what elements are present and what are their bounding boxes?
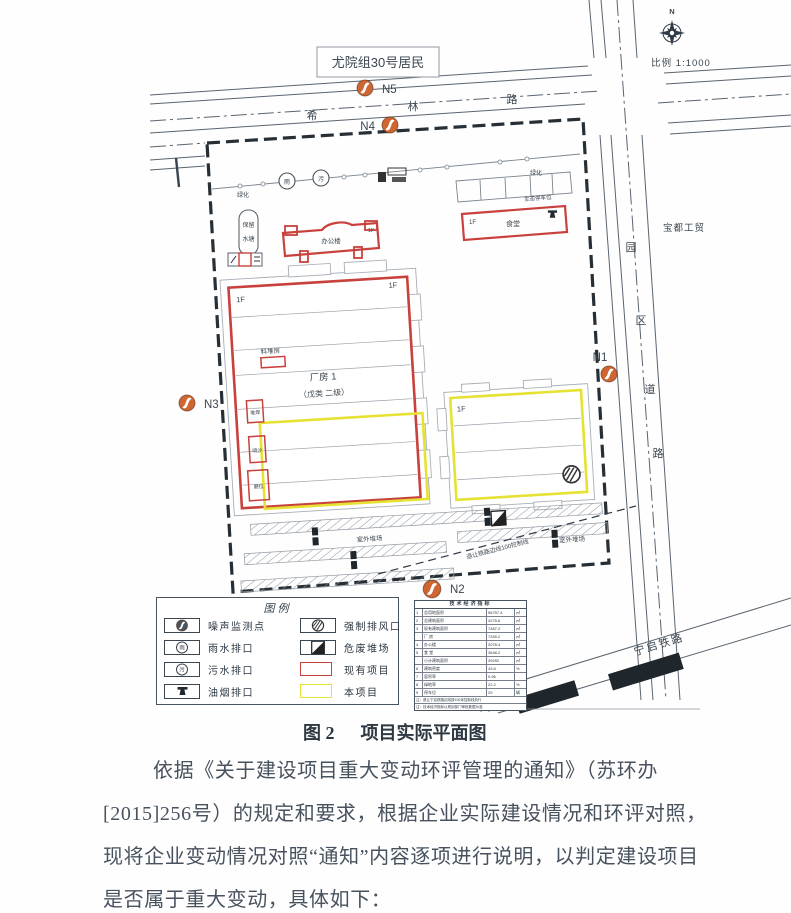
row-value: 56757.4 <box>487 609 515 616</box>
monitor-point-icon-n5 <box>357 80 373 96</box>
row-name: 总用地面积 <box>423 609 487 616</box>
indicator-table-row: 3 现有建筑面积 7487.2 ㎡ <box>415 625 526 633</box>
pond-line2: 水塘 <box>242 235 254 243</box>
svg-text:雨: 雨 <box>179 644 185 651</box>
monitor-label-n4: N4 <box>360 121 375 133</box>
road-xilin-char2: 林 <box>408 99 419 113</box>
row-value: 7487.2 <box>487 625 515 632</box>
row-value: 29 <box>487 689 515 696</box>
south-yards: 室外堆场 室外堆场 <box>237 501 610 592</box>
room-label-2: 喷沙 <box>252 447 262 455</box>
body-line-2: [2015]256号）的规定和要求，根据企业实际建设情况和环评对照， <box>103 799 703 842</box>
row-name: 厂 房 <box>423 633 487 640</box>
row-name: 小计建筑面积 <box>423 657 487 664</box>
monitor-label-n2: N2 <box>450 584 465 596</box>
svg-text:污: 污 <box>179 665 185 673</box>
row-name: 停车位 <box>423 689 487 696</box>
row-value: 4275.6 <box>487 617 515 624</box>
xilin-road <box>150 66 600 187</box>
legend-item-label: 现有项目 <box>344 662 399 677</box>
row-index: 8 <box>415 681 423 688</box>
legend-item-label: 噪声监测点 <box>208 618 300 633</box>
legend-item-label: 强制排风口 <box>344 618 399 633</box>
indicator-table-row: 8 绿地率 22.2 % <box>415 681 526 689</box>
xilin-road-east <box>658 65 791 134</box>
indicator-table-row: 4 办公楼 2078.4 ㎡ <box>415 641 526 649</box>
legend-item-label: 污水排口 <box>208 662 300 677</box>
indicator-table-rows: 1 总用地面积 56757.4 ㎡ 2 总建筑面积 4275.6 ㎡ 3 现有建… <box>415 609 526 697</box>
park-road <box>589 0 680 700</box>
row-unit: ㎡ <box>515 617 526 624</box>
monitor-label-n5: N5 <box>382 84 397 96</box>
canteen-label: 食堂 <box>506 219 520 228</box>
road-park-char4: 路 <box>653 447 664 460</box>
row-name: 食 堂 <box>423 649 487 656</box>
rain-outlet-legend-icon: 雨 <box>164 640 200 655</box>
eco-parking-strip <box>456 172 572 202</box>
road-park-char1: 园 <box>626 241 637 254</box>
row-name: 容积率 <box>423 673 487 680</box>
legend-item-label: 油烟排口 <box>208 684 300 699</box>
indicator-table-row: 厂 房 7345.2 ㎡ <box>415 633 526 641</box>
north-label: N <box>669 7 674 16</box>
rain-outlet-char: 雨 <box>284 179 290 186</box>
legend-grid: 噪声监测点 强制排风口 雨 雨水排口 危废堆场 污 污水排口 现有项目 油烟排口… <box>164 614 399 702</box>
indicator-table-title: 技术经济指标 <box>415 601 526 609</box>
company-label: 宝都工贸 <box>663 222 705 234</box>
row-unit: ㎡ <box>515 649 526 656</box>
row-unit: ㎡ <box>515 657 526 664</box>
compass-rose <box>659 20 685 46</box>
row-name: 绿地率 <box>423 681 487 688</box>
legend-item-label: 雨水排口 <box>208 640 300 655</box>
body-line-1: 依据《关于建设项目重大变动环评管理的通知》（苏环办 <box>103 756 703 799</box>
row-index: 3 <box>415 625 423 632</box>
factory2-building: 1F <box>435 377 595 516</box>
resident-label: 尤院组30号居民 <box>332 55 424 70</box>
indicator-table-row: 2 总建筑面积 4275.6 ㎡ <box>415 617 526 625</box>
row-index <box>415 657 423 664</box>
road-xilin-char3: 路 <box>507 93 518 106</box>
factory2-floor: 1F <box>457 404 467 414</box>
row-name: 建筑密度 <box>423 665 487 672</box>
monitor-point-icon-n4 <box>382 117 398 133</box>
row-index: 7 <box>415 673 423 680</box>
sewage-outlet-char: 污 <box>318 175 324 183</box>
row-value: 7345.2 <box>487 633 515 640</box>
indicator-note-1: 注：退让宁启铁路边线按100米控制线执行 <box>415 697 526 704</box>
scale-label: 比例 1:1000 <box>651 57 711 69</box>
row-unit: ㎡ <box>515 609 526 616</box>
row-unit: 辆 <box>515 689 526 696</box>
legend-item-label: 危废堆场 <box>344 640 399 655</box>
indicator-table-row: 7 容积率 0.96 <box>415 673 526 681</box>
legend-item-label: 本项目 <box>344 684 399 699</box>
row-value: 2078.4 <box>487 641 515 648</box>
row-index: 5 <box>415 649 423 656</box>
figure-number: 图 2 <box>303 719 335 745</box>
row-index: 4 <box>415 641 423 648</box>
forced-vent-icon <box>563 465 581 483</box>
room-label-3: 磨位 <box>253 483 263 491</box>
monitor-label-n3: N3 <box>204 399 219 411</box>
monitor-point-icon-n1 <box>601 366 617 382</box>
indicator-table-row: 5 食 堂 3648.2 ㎡ <box>415 649 526 657</box>
indicator-table-row: 9 停车位 29 辆 <box>415 689 526 697</box>
row-unit: % <box>515 681 526 688</box>
this-project-legend-swatch <box>300 684 332 698</box>
row-index <box>415 633 423 640</box>
row-name: 办公楼 <box>423 641 487 648</box>
row-unit: ㎡ <box>515 641 526 648</box>
row-unit: % <box>515 665 526 672</box>
row-value: 0.96 <box>487 673 515 680</box>
row-name: 总建筑面积 <box>423 617 487 624</box>
room-label-1: 堆焊 <box>250 409 260 417</box>
indicator-table: 技术经济指标 1 总用地面积 56757.4 ㎡ 2 总建筑面积 4275.6 … <box>414 600 527 711</box>
canteen-floor: 1F <box>469 220 476 226</box>
green-label-1: 绿化 <box>237 191 249 199</box>
factory1-floor-left: 1F <box>236 295 246 305</box>
oil-fume-legend-icon <box>164 684 200 699</box>
factory1-name: 厂房 1 <box>309 370 337 384</box>
pump-box <box>228 253 262 266</box>
pond-line1: 保留 <box>242 221 254 229</box>
retained-pond: 保留 水塘 <box>228 210 262 266</box>
indicator-table-row: 小计建筑面积 39292 ㎡ <box>415 657 526 665</box>
indicator-table-row: 1 总用地面积 56757.4 ㎡ <box>415 609 526 617</box>
office-floor: 1F <box>368 228 375 234</box>
hazwaste-legend-icon <box>300 640 336 655</box>
body-line-4: 是否属于重大变动，具体如下： <box>103 885 703 913</box>
row-index: 2 <box>415 617 423 624</box>
office-label: 办公楼 <box>321 236 341 245</box>
forced-vent-legend-icon <box>300 618 336 633</box>
row-unit: ㎡ <box>515 633 526 640</box>
existing-project-legend-swatch <box>300 662 332 676</box>
row-index: 9 <box>415 689 423 696</box>
body-paragraph: 依据《关于建设项目重大变动环评管理的通知》（苏环办 [2015]256号）的规定… <box>103 756 703 913</box>
office-building: 1F 办公楼 <box>283 221 379 262</box>
road-park-char3: 道 <box>645 382 656 396</box>
monitor-point-icon-n3 <box>179 395 195 411</box>
indicator-table-row: 6 建筑密度 43.8 % <box>415 665 526 673</box>
indicator-note-2: 注：技术经济指标以规划部门审批数据为准 <box>415 704 526 710</box>
row-index: 1 <box>415 609 423 616</box>
row-value: 22.2 <box>487 681 515 688</box>
factory1-building: 1F 1F 厂房 1 （戊类 二级） 料堆房 堆焊 喷沙 磨位 <box>219 258 433 516</box>
row-unit: ㎡ <box>515 625 526 632</box>
green-label-2: 绿化 <box>530 169 542 177</box>
row-value: 39292 <box>487 657 515 664</box>
legend-box: 图例 噪声监测点 强制排风口 雨 雨水排口 危废堆场 污 污水排口 现有项目 油… <box>156 597 399 705</box>
canteen-building: 1F 食堂 <box>462 206 567 240</box>
monitor-point-icon-n2 <box>423 580 441 598</box>
noise-monitor-legend-icon <box>164 618 200 633</box>
row-unit <box>515 673 526 680</box>
road-park-char2: 区 <box>636 315 647 327</box>
row-value: 3648.2 <box>487 649 515 656</box>
eco-parking-label: 生态停车位 <box>524 193 552 203</box>
north-fence: 雨 污 绿化 绿化 <box>212 154 580 199</box>
hazwaste-yard-icon <box>491 511 506 526</box>
row-index: 6 <box>415 665 423 672</box>
figure-caption: 图 2 项目实际平面图 <box>303 719 487 745</box>
row-name: 现有建筑面积 <box>423 625 487 632</box>
document-page: 希 林 路 园 区 道 路 宝都工贸 N 比例 1:1000 尤院组30号居民 … <box>0 0 791 913</box>
monitor-label-n1: N1 <box>593 352 608 364</box>
gatehouse <box>378 168 406 182</box>
body-line-3: 现将企业变动情况对照“通知”内容逐项进行说明，以判定建设项目 <box>103 842 703 885</box>
figure-title: 项目实际平面图 <box>361 719 487 745</box>
row-value: 43.8 <box>487 665 515 672</box>
sewage-outlet-legend-icon: 污 <box>164 662 200 677</box>
road-xilin-char1: 希 <box>307 108 318 122</box>
factory1-floor-right: 1F <box>388 280 398 290</box>
yard-label-1: 室外堆场 <box>356 533 383 544</box>
oil-fume-outlet-icon <box>548 210 557 217</box>
